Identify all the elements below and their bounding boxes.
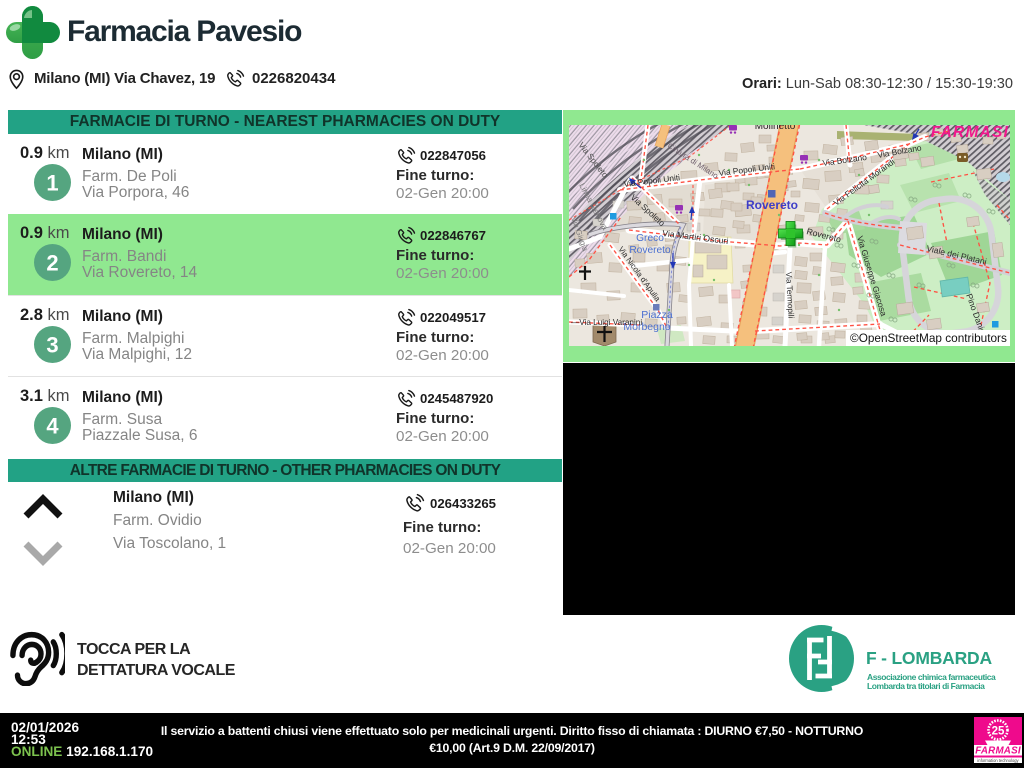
svg-text:FARMASI: FARMASI [931, 125, 1009, 141]
svg-text:Molinetto: Molinetto [755, 125, 796, 132]
svg-text:1: 1 [46, 171, 58, 196]
svg-text:Rovereto: Rovereto [629, 245, 671, 256]
svg-text:Greco: Greco [636, 233, 664, 244]
svg-text:©OpenStreetMap contributors: ©OpenStreetMap contributors [850, 331, 1007, 345]
svg-text:2: 2 [46, 251, 58, 276]
svg-text:3: 3 [46, 333, 58, 358]
svg-text:FARMASI: FARMASI [975, 746, 1021, 757]
svg-text:—Via Luigi Varanini: —Via Luigi Varanini [571, 318, 642, 327]
svg-text:25: 25 [992, 726, 1005, 738]
svg-text:4: 4 [46, 414, 59, 439]
svg-text:Piazza: Piazza [641, 309, 673, 321]
svg-text:Rovereto: Rovereto [746, 198, 798, 212]
svg-text:information technology: information technology [977, 758, 1019, 763]
